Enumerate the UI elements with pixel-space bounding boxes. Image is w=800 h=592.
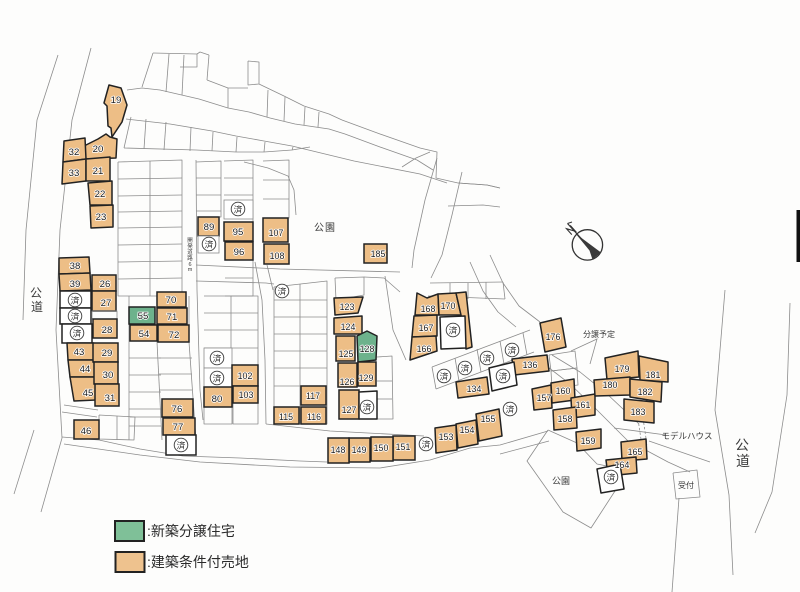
svg-text:済: 済 (422, 438, 431, 449)
svg-text:21: 21 (93, 166, 104, 177)
svg-text:71: 71 (167, 312, 178, 323)
svg-text:30: 30 (103, 370, 114, 381)
svg-text:158: 158 (558, 414, 573, 424)
svg-text:115: 115 (279, 412, 293, 422)
svg-text:済: 済 (440, 370, 449, 381)
svg-text:161: 161 (576, 400, 591, 410)
svg-text:148: 148 (331, 445, 346, 455)
svg-text:済: 済 (363, 401, 372, 412)
svg-text:29: 29 (102, 348, 113, 359)
svg-text:126: 126 (340, 377, 355, 387)
svg-text:167: 167 (419, 323, 434, 333)
svg-text:134: 134 (467, 384, 482, 394)
svg-text:済: 済 (71, 310, 80, 321)
svg-text:31: 31 (105, 393, 116, 404)
svg-text:モデルハウス: モデルハウス (661, 431, 712, 441)
svg-text:22: 22 (95, 189, 106, 200)
svg-text:128: 128 (360, 344, 375, 354)
svg-text:済: 済 (177, 439, 186, 450)
svg-text:公道: 公道 (735, 437, 750, 469)
svg-text:136: 136 (523, 360, 538, 370)
svg-text:159: 159 (581, 436, 596, 446)
svg-text:96: 96 (234, 247, 245, 258)
svg-text:124: 124 (341, 322, 356, 332)
svg-text:170: 170 (441, 301, 456, 311)
svg-text:済: 済 (213, 372, 222, 383)
svg-text:済: 済 (71, 294, 80, 305)
svg-text:44: 44 (80, 364, 91, 375)
svg-text:76: 76 (172, 404, 183, 415)
svg-text:107: 107 (269, 228, 284, 238)
svg-text:45: 45 (83, 388, 94, 399)
svg-text:77: 77 (173, 422, 184, 433)
svg-text:102: 102 (238, 371, 253, 381)
svg-text:108: 108 (270, 251, 285, 261)
svg-text:公道: 公道 (30, 286, 43, 314)
svg-text:127: 127 (342, 405, 357, 415)
svg-text:181: 181 (646, 370, 661, 380)
svg-text:151: 151 (396, 442, 411, 452)
svg-text:33: 33 (69, 168, 80, 179)
svg-text:154: 154 (460, 425, 475, 435)
svg-text:179: 179 (615, 364, 630, 374)
svg-text:165: 165 (628, 447, 643, 457)
svg-text:80: 80 (212, 394, 223, 405)
svg-text::建築条件付売地: :建築条件付売地 (147, 554, 249, 570)
svg-text:済: 済 (449, 324, 458, 335)
svg-text:166: 166 (417, 344, 432, 354)
svg-text:157: 157 (537, 393, 552, 403)
svg-text:済: 済 (278, 285, 287, 296)
svg-text:95: 95 (233, 227, 244, 238)
svg-text:125: 125 (339, 349, 354, 359)
svg-text:公園: 公園 (314, 222, 336, 234)
svg-text:43: 43 (74, 347, 85, 358)
svg-text:済: 済 (483, 352, 492, 363)
svg-text:28: 28 (102, 325, 113, 336)
svg-text:176: 176 (546, 332, 561, 342)
svg-text:89: 89 (204, 222, 215, 233)
svg-text:済: 済 (506, 403, 515, 414)
svg-text:分譲予定: 分譲予定 (583, 329, 615, 339)
svg-text:185: 185 (371, 249, 386, 259)
svg-text:済: 済 (499, 370, 508, 381)
svg-text:済: 済 (213, 352, 222, 363)
svg-text:117: 117 (306, 391, 320, 401)
svg-text:116: 116 (307, 412, 321, 422)
svg-text:済: 済 (607, 471, 616, 482)
svg-text:182: 182 (638, 387, 653, 397)
svg-text:155: 155 (481, 414, 496, 424)
svg-text:123: 123 (340, 302, 355, 312)
svg-text:150: 150 (374, 443, 389, 453)
svg-text:46: 46 (81, 426, 92, 437)
svg-text:38: 38 (70, 261, 81, 272)
svg-text:受付: 受付 (678, 480, 694, 490)
svg-text::新築分譲住宅: :新築分譲住宅 (147, 523, 235, 539)
svg-text:済: 済 (508, 344, 517, 355)
svg-text:160: 160 (556, 386, 571, 396)
svg-text:183: 183 (631, 407, 646, 417)
svg-text:19: 19 (111, 95, 122, 106)
svg-text:済: 済 (205, 238, 214, 249)
svg-text:168: 168 (421, 304, 436, 314)
svg-text:済: 済 (461, 362, 470, 373)
svg-text:153: 153 (439, 432, 454, 442)
svg-text:公園: 公園 (552, 476, 570, 486)
svg-text:26: 26 (100, 279, 111, 290)
svg-text:32: 32 (69, 147, 80, 158)
svg-text:164: 164 (615, 460, 630, 470)
svg-text:20: 20 (93, 144, 104, 155)
svg-text:39: 39 (70, 279, 81, 290)
svg-text:129: 129 (359, 373, 374, 383)
svg-text:103: 103 (239, 390, 254, 400)
svg-text:180: 180 (603, 380, 618, 390)
svg-text:149: 149 (352, 445, 367, 455)
svg-text:済: 済 (234, 203, 243, 214)
svg-text:55: 55 (138, 311, 149, 322)
svg-text:27: 27 (101, 298, 112, 309)
svg-text:70: 70 (166, 295, 177, 306)
svg-text:23: 23 (96, 212, 107, 223)
svg-text:54: 54 (139, 329, 150, 340)
svg-text:72: 72 (169, 330, 180, 341)
svg-text:済: 済 (73, 327, 82, 338)
